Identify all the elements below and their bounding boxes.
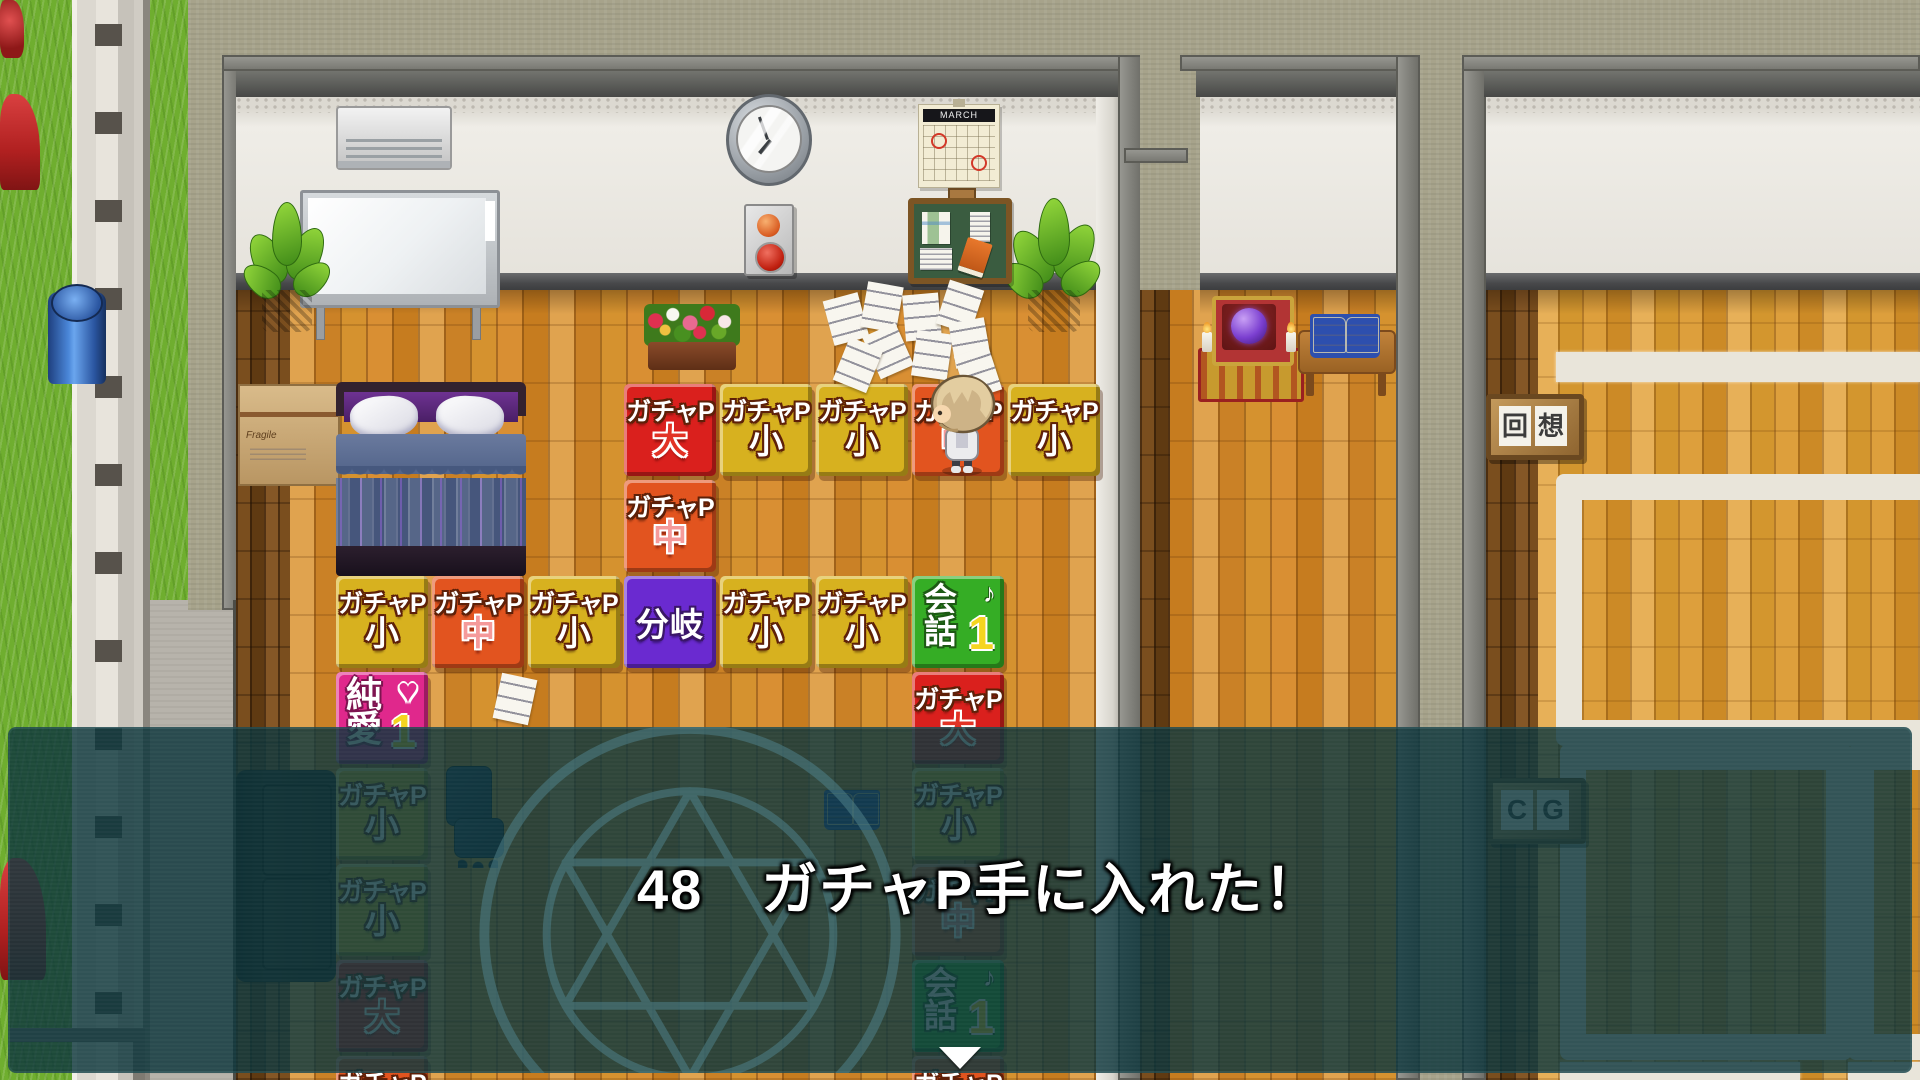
scattered-paper-2 [860,281,903,333]
event-tile-large-3x0[interactable]: ガチャP大 [624,384,716,476]
message-body: ガチャP手に入れた！ [761,858,1322,921]
event-tile-small-2x2[interactable]: ガチャP小 [528,576,620,668]
event-tile-small-4x0[interactable]: ガチャP小 [720,384,812,476]
event-tile-small-7x0[interactable]: ガチャP小 [1008,384,1100,476]
event-tile-small-0x2[interactable]: ガチャP小 [336,576,428,668]
scattered-paper-10 [493,673,538,725]
event-tile-small-5x0[interactable]: ガチャP小 [816,384,908,476]
event-tile-talk-6x2[interactable]: 会話♪1 [912,576,1004,668]
player-character [928,372,996,478]
event-tile-small-5x2[interactable]: ガチャP小 [816,576,908,668]
event-tile-small-4x2[interactable]: ガチャP小 [720,576,812,668]
event-tile-branch-3x2[interactable]: 分岐 [624,576,716,668]
message-count: 48 [637,858,703,921]
event-tile-medium-1x2[interactable]: ガチャP中 [432,576,524,668]
event-tile-medium-3x1[interactable]: ガチャP中 [624,480,716,572]
message-text: 48ガチャP手に入れた！ [637,845,1322,926]
message-continue-icon[interactable] [939,1047,981,1069]
game-screen: MARCH Fragile [0,0,1920,1080]
message-window: 48ガチャP手に入れた！ [8,727,1912,1073]
